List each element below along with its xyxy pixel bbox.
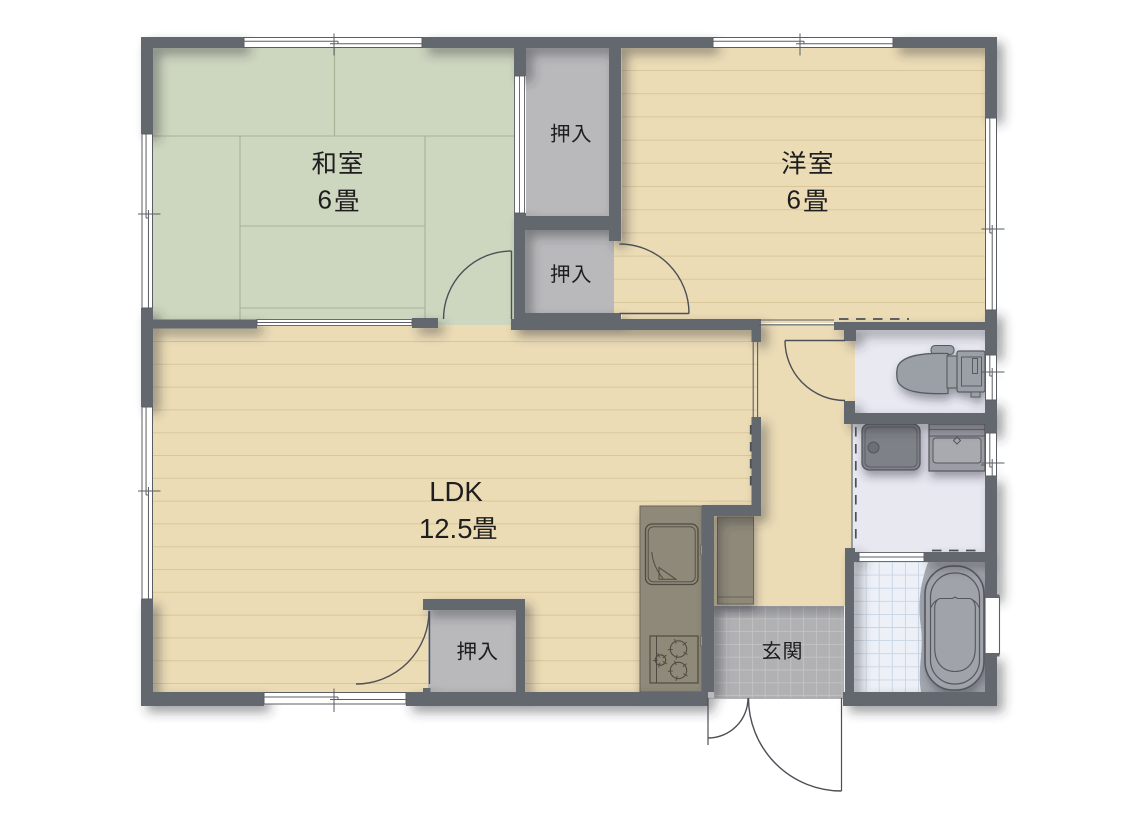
svg-text:6: 6	[787, 185, 801, 215]
svg-text:12.5: 12.5	[419, 513, 473, 544]
svg-text:LDK: LDK	[429, 476, 483, 507]
svg-text:6: 6	[318, 185, 332, 215]
